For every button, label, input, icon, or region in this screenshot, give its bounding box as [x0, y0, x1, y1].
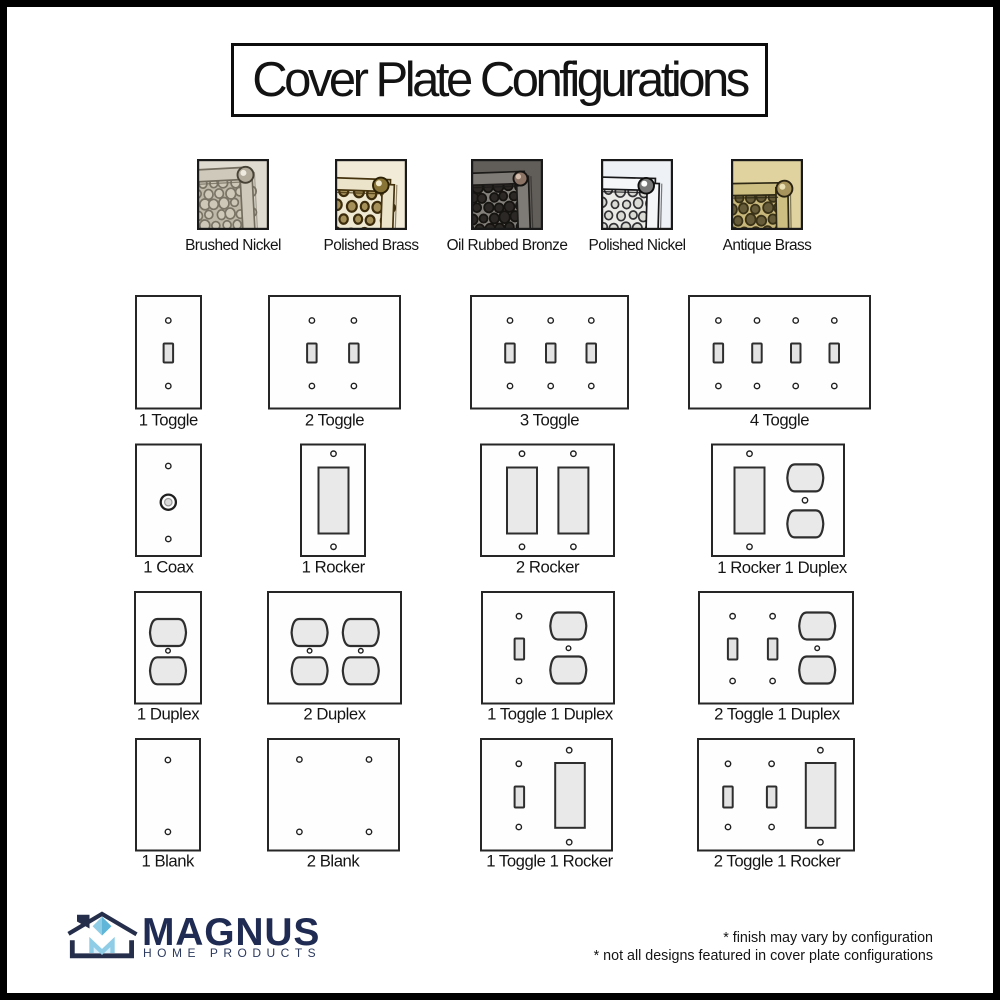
svg-text:4 Toggle: 4 Toggle	[750, 411, 809, 430]
svg-text:1 Duplex: 1 Duplex	[137, 705, 200, 724]
svg-text:1 Blank: 1 Blank	[141, 852, 195, 871]
svg-text:2 Toggle: 2 Toggle	[305, 411, 364, 430]
svg-text:2 Blank: 2 Blank	[307, 852, 361, 871]
svg-text:1 Toggle: 1 Toggle	[139, 411, 198, 430]
svg-text:2 Rocker: 2 Rocker	[516, 558, 580, 577]
svg-text:1 Toggle 1 Duplex: 1 Toggle 1 Duplex	[487, 705, 614, 724]
svg-text:3 Toggle: 3 Toggle	[520, 411, 579, 430]
svg-text:2 Toggle 1 Rocker: 2 Toggle 1 Rocker	[714, 852, 841, 871]
svg-text:1 Rocker 1 Duplex: 1 Rocker 1 Duplex	[717, 558, 848, 577]
svg-text:2 Duplex: 2 Duplex	[303, 705, 366, 724]
svg-text:1 Coax: 1 Coax	[143, 558, 194, 577]
svg-text:1 Rocker: 1 Rocker	[302, 558, 366, 577]
svg-text:2 Toggle 1 Duplex: 2 Toggle 1 Duplex	[714, 705, 841, 724]
svg-text:1 Toggle 1 Rocker: 1 Toggle 1 Rocker	[486, 852, 613, 871]
